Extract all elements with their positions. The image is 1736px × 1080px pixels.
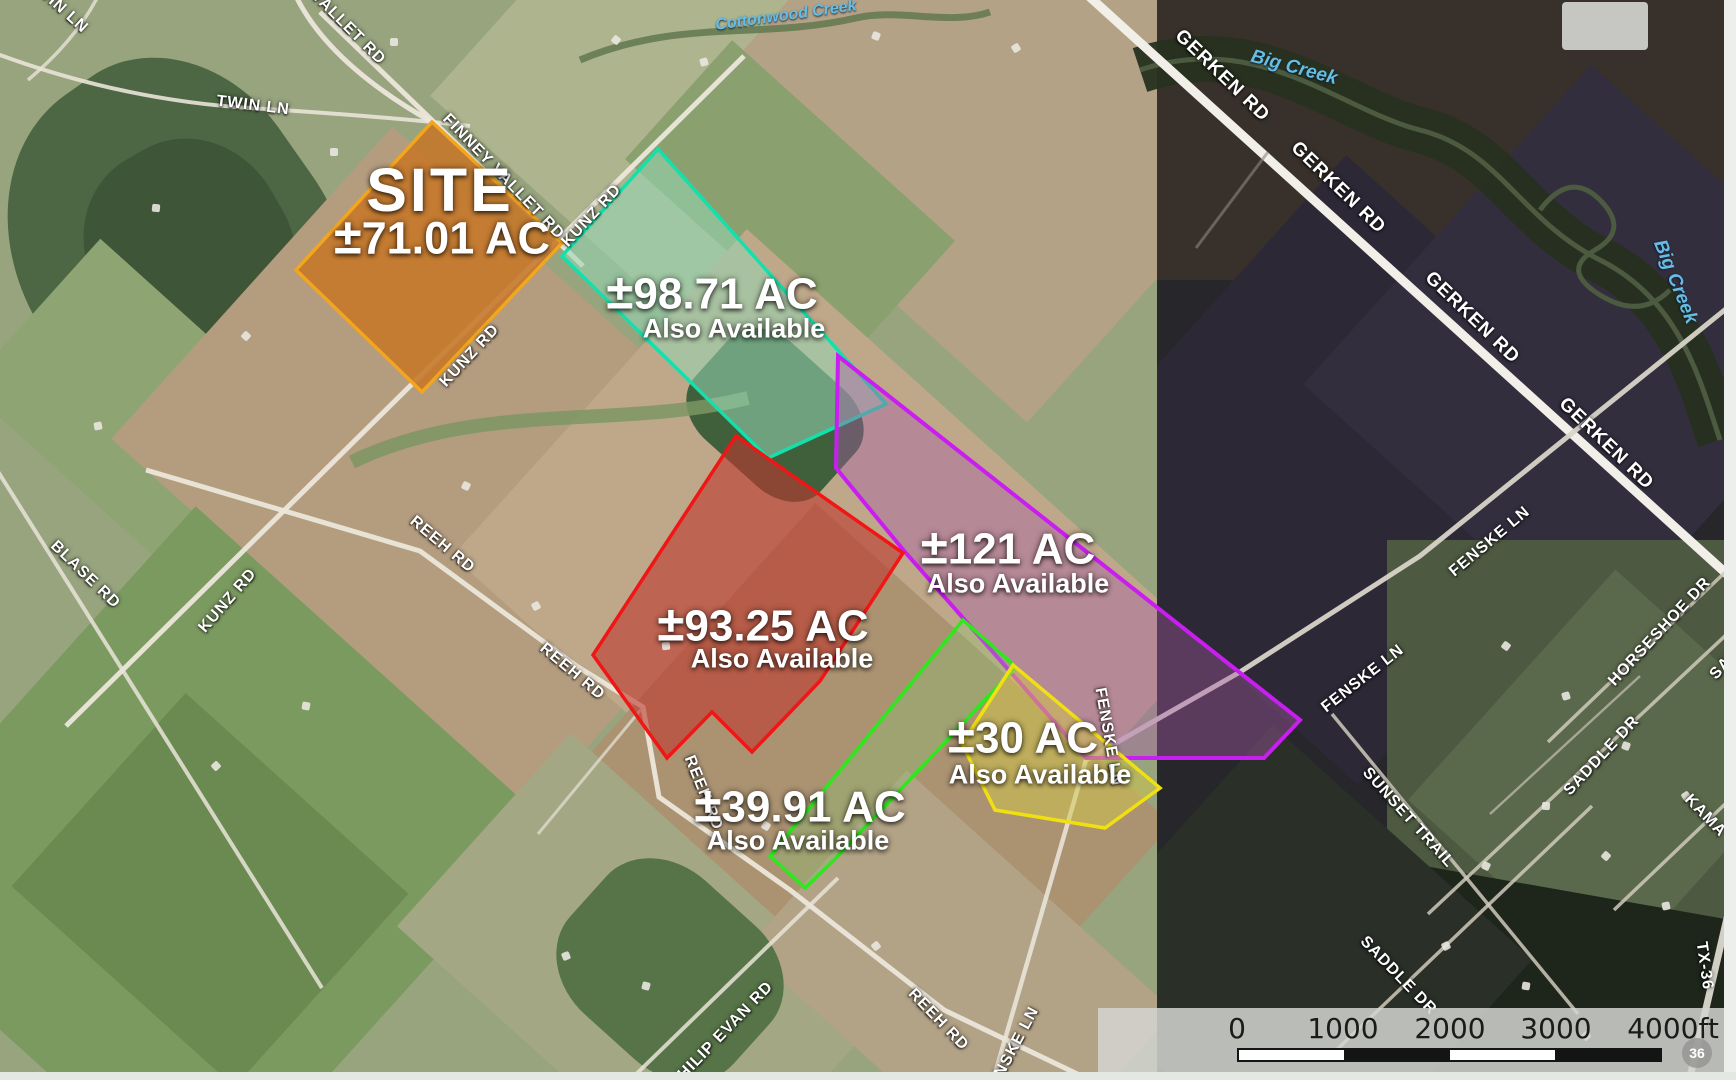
scale-tick: 1000 (1307, 1012, 1378, 1045)
parcel-98-71-area-label: ±98.71 AC (606, 264, 817, 321)
plus-minus-symbol: ± (657, 597, 684, 652)
parcel-labels-layer: SITE ±71.01 AC ±98.71 AC Also Available … (0, 0, 1736, 1080)
aerial-site-map: TWIN LN VALLET RD TWIN LN FINNEY VALLET … (0, 0, 1736, 1080)
bottom-edge-strip (0, 1072, 1736, 1080)
plus-minus-symbol: ± (694, 778, 721, 833)
parcel-39-91-note: Also Available (707, 826, 890, 857)
highway-36-shield-icon: 36 (1682, 1038, 1712, 1068)
scale-segment (1555, 1050, 1660, 1060)
scale-bar-segments (1237, 1048, 1662, 1062)
parcel-98-71-note: Also Available (643, 314, 826, 345)
parcel-30-note: Also Available (949, 760, 1132, 791)
site-area-label: ±71.01 AC (334, 207, 550, 266)
plus-minus-symbol: ± (921, 520, 948, 575)
plus-minus-symbol: ± (606, 265, 633, 320)
scale-tick: 2000 (1414, 1012, 1485, 1045)
scale-segment (1450, 1050, 1555, 1060)
parcel-93-25-note: Also Available (691, 644, 874, 675)
scale-bar: 0 1000 2000 3000 4000ft 36 (1098, 1008, 1724, 1072)
parcel-121-note: Also Available (927, 569, 1110, 600)
scale-segment (1344, 1050, 1449, 1060)
scale-tick: 0 (1228, 1012, 1246, 1045)
scale-tick: 3000 (1520, 1012, 1591, 1045)
scale-segment (1239, 1050, 1344, 1060)
right-edge-strip (1724, 0, 1736, 1080)
plus-minus-symbol: ± (334, 208, 362, 265)
plus-minus-symbol: ± (948, 709, 975, 764)
parcel-121-area-label: ±121 AC (921, 519, 1096, 576)
parcel-30-area-label: ±30 AC (948, 708, 1098, 765)
